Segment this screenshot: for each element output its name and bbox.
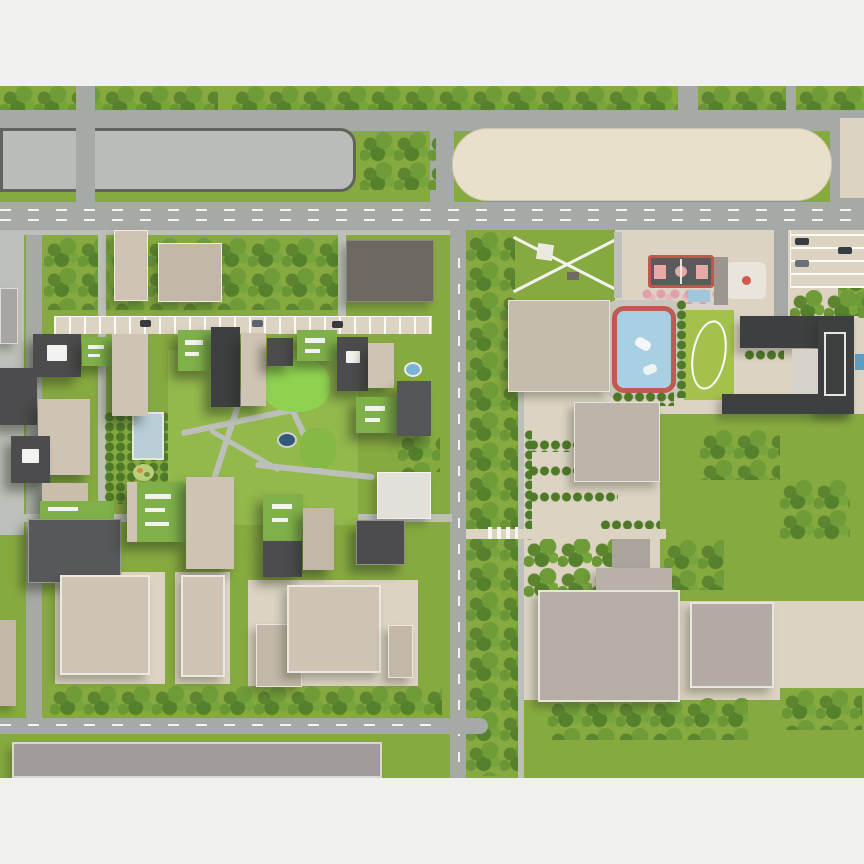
school-u-building <box>722 316 854 415</box>
stepped-path <box>614 232 622 298</box>
tree-row <box>548 698 748 740</box>
entrance-canopy <box>855 354 864 370</box>
green-roof-building <box>263 494 303 541</box>
rooftop-units <box>145 522 169 526</box>
retail-building <box>538 590 680 702</box>
school-building <box>508 300 610 392</box>
green-roof-building <box>82 337 112 366</box>
green-roof-building <box>356 397 397 433</box>
rooftop-units <box>88 345 104 349</box>
rooftop-units <box>48 507 78 511</box>
parked-car <box>795 260 809 267</box>
rooftop-units <box>305 338 325 343</box>
tower-beige <box>186 477 234 569</box>
rooftop-units <box>365 406 385 411</box>
tree-patch <box>780 480 850 540</box>
hedge-row <box>528 492 618 502</box>
rooftop-structure <box>47 345 67 361</box>
road-stub <box>786 86 796 112</box>
reflecting-pool <box>132 412 164 460</box>
rooftop-units <box>145 494 171 499</box>
top-tree-strip <box>796 86 864 112</box>
lane-dashes <box>0 209 864 211</box>
park-pond <box>277 432 297 448</box>
tower-dark <box>263 541 302 577</box>
rooftop-units <box>185 352 199 356</box>
rooftop-units <box>88 354 100 357</box>
slab-dark-ribbed <box>28 519 121 583</box>
tower-dark <box>337 337 368 391</box>
courtyard-hedge <box>744 350 784 360</box>
footpath <box>338 232 346 328</box>
street-parking <box>54 316 432 334</box>
dark-office-building <box>346 240 434 302</box>
commercial-building <box>181 575 225 677</box>
splash-pool <box>612 306 676 393</box>
school-wing-south <box>722 394 854 414</box>
basketball-court <box>648 255 714 288</box>
top-margin <box>0 0 864 86</box>
green-roof-building <box>297 330 337 361</box>
play-structure <box>634 336 653 353</box>
long-warehouse-building <box>12 742 382 778</box>
parterre-garden <box>133 464 154 481</box>
low-gray-building <box>158 243 222 302</box>
parked-car <box>332 321 343 328</box>
tree-row <box>50 686 442 716</box>
tree-patch <box>664 540 724 590</box>
rooftop-units <box>272 518 288 522</box>
rooftop-structure <box>22 449 39 463</box>
play-structure <box>642 363 658 376</box>
commercial-building <box>287 585 381 673</box>
parked-car <box>838 247 852 254</box>
court-key <box>696 265 708 279</box>
roof-trim <box>824 332 846 396</box>
carousel <box>742 276 751 285</box>
green-roof-building <box>178 330 212 371</box>
play-equipment <box>567 272 579 280</box>
low-building <box>596 568 672 590</box>
bridge-road <box>76 86 95 204</box>
tower-beige <box>241 333 266 406</box>
tower-beige <box>368 343 394 388</box>
crosswalk <box>488 527 518 539</box>
school-building <box>574 402 660 482</box>
commercial-building <box>0 620 16 706</box>
corner-pavement <box>840 118 864 198</box>
lane-dashes <box>0 219 864 221</box>
rooftop-units <box>365 418 380 422</box>
rooftop-units <box>305 349 320 353</box>
low-beige-building <box>114 230 148 301</box>
school-park <box>515 230 615 302</box>
rooftop-units <box>145 508 165 512</box>
park-playground <box>262 358 330 412</box>
rooftop-units <box>185 340 203 345</box>
inner-hall <box>792 349 818 394</box>
campus-street <box>774 230 788 330</box>
tree-patch <box>700 430 780 480</box>
site-plan-aerial-render <box>0 0 864 864</box>
masterplan-scene <box>0 0 864 864</box>
rooftop-structure <box>346 351 360 363</box>
park-playground <box>300 428 336 468</box>
road-stub <box>678 86 698 112</box>
south-road-turnout <box>432 718 488 734</box>
sunken-lot <box>0 128 356 192</box>
parked-car <box>252 320 263 327</box>
court-key <box>654 265 666 279</box>
south-road <box>0 718 452 734</box>
slab-dark <box>0 368 37 425</box>
parked-car <box>795 238 809 245</box>
paved-plaza <box>452 128 832 201</box>
half-court-line <box>680 259 682 284</box>
hedge-row <box>524 430 532 540</box>
tower-beige <box>303 508 334 570</box>
slab-dark <box>356 520 405 565</box>
gray-slab-building <box>0 288 18 344</box>
tree-patch <box>790 290 864 318</box>
parked-car <box>140 320 151 327</box>
parking-stalls <box>54 316 432 334</box>
white-building <box>377 472 431 519</box>
play-pad <box>536 243 554 261</box>
commercial-building <box>388 625 413 678</box>
retail-building <box>690 602 774 688</box>
slab-dark <box>267 338 293 366</box>
tower-dark <box>33 334 81 377</box>
tower-dark <box>397 381 431 436</box>
top-tree-strip <box>698 86 788 112</box>
south-road-dashes <box>0 724 452 726</box>
tree-patch <box>360 132 436 190</box>
central-street-dashes <box>458 242 460 762</box>
parterre-bed <box>137 468 143 473</box>
tower-beige <box>112 334 148 416</box>
facade-edge <box>127 482 137 542</box>
hedge-strip <box>676 300 686 398</box>
parterre-bed <box>144 472 150 477</box>
tree-patch <box>782 690 862 730</box>
commercial-building <box>60 575 150 675</box>
green-roof-building <box>127 482 187 542</box>
pergola <box>714 257 728 305</box>
tower-dark <box>11 436 50 483</box>
blue-play-pad <box>688 290 710 302</box>
kindergarten-playground <box>726 262 766 299</box>
courtyard-fountain <box>404 362 422 377</box>
tower-dark-striped <box>211 327 240 407</box>
main-road <box>0 202 864 230</box>
tree-patch <box>398 432 440 472</box>
rooftop-units <box>272 504 292 509</box>
bottom-margin <box>0 778 864 864</box>
green-roof-strip <box>40 501 114 520</box>
